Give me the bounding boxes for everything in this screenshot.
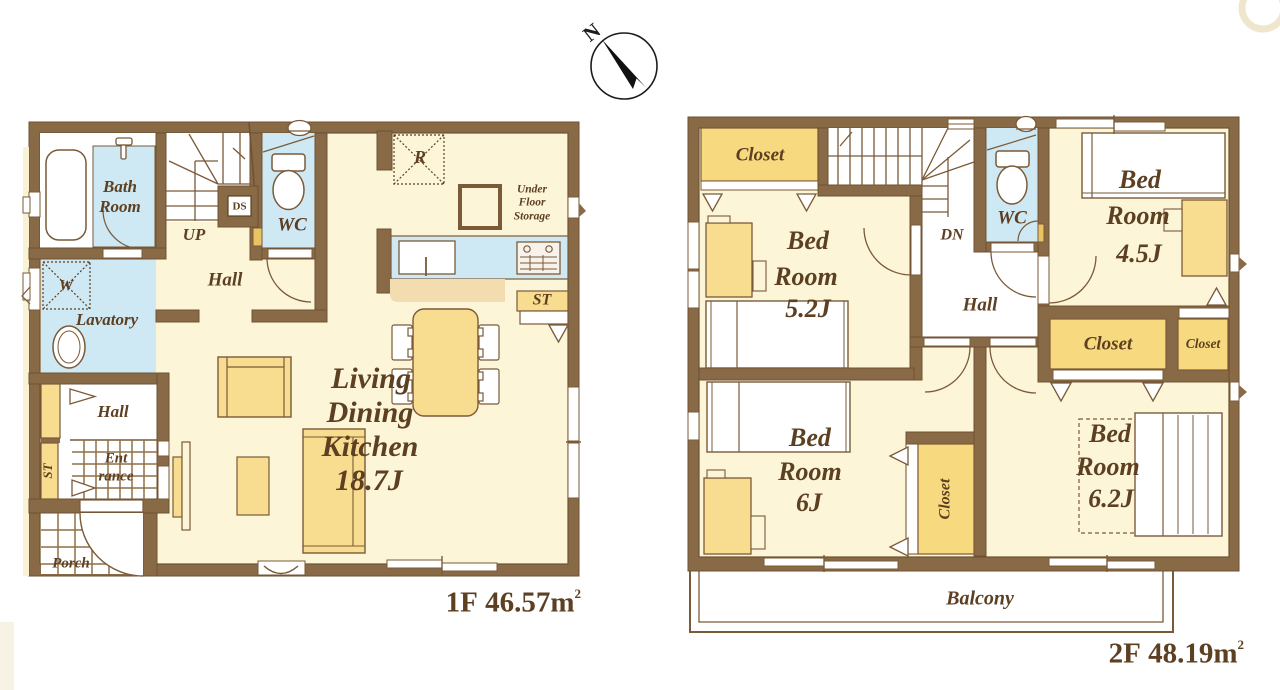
svg-text:Hall: Hall	[96, 402, 128, 421]
svg-text:WC: WC	[277, 214, 307, 235]
svg-text:18.7J: 18.7J	[335, 464, 404, 497]
svg-text:Room: Room	[1075, 452, 1140, 481]
svg-text:R: R	[413, 147, 426, 167]
svg-text:WC: WC	[997, 207, 1027, 228]
svg-text:Floor: Floor	[518, 197, 546, 209]
svg-text:5.2J: 5.2J	[785, 294, 832, 323]
svg-text:4.5J: 4.5J	[1115, 239, 1163, 268]
svg-text:Bed: Bed	[1118, 165, 1162, 194]
svg-text:ST: ST	[40, 462, 55, 478]
svg-text:2F 48.19m2: 2F 48.19m2	[1109, 637, 1244, 670]
svg-text:Bed: Bed	[788, 423, 832, 452]
svg-text:Balcony: Balcony	[945, 588, 1014, 610]
svg-text:DN: DN	[939, 227, 965, 244]
svg-text:Bed: Bed	[786, 226, 830, 255]
svg-text:Ent: Ent	[104, 450, 128, 466]
svg-text:Under: Under	[517, 184, 548, 196]
svg-text:Living: Living	[330, 362, 411, 395]
svg-text:6.2J: 6.2J	[1088, 484, 1135, 513]
svg-text:W: W	[59, 278, 75, 295]
svg-text:6J: 6J	[796, 488, 823, 517]
svg-text:Closet: Closet	[937, 478, 954, 519]
svg-text:rance: rance	[99, 468, 134, 484]
svg-text:Closet: Closet	[736, 144, 785, 165]
svg-text:Bath: Bath	[102, 177, 137, 196]
svg-text:Room: Room	[1105, 201, 1170, 230]
svg-text:Room: Room	[773, 262, 838, 291]
svg-text:Closet: Closet	[1186, 336, 1222, 351]
svg-text:Dining: Dining	[326, 396, 414, 429]
svg-text:Lavatory: Lavatory	[75, 310, 139, 329]
svg-text:Kitchen: Kitchen	[321, 430, 419, 463]
svg-text:Hall: Hall	[207, 269, 244, 290]
svg-text:Closet: Closet	[1084, 333, 1133, 354]
svg-text:Storage: Storage	[514, 211, 550, 223]
svg-text:Room: Room	[98, 197, 141, 216]
svg-text:Bed: Bed	[1088, 419, 1132, 448]
svg-text:Room: Room	[777, 457, 842, 486]
svg-text:UP: UP	[183, 225, 206, 244]
svg-text:DS: DS	[232, 201, 246, 213]
svg-text:1F 46.57m2: 1F 46.57m2	[446, 586, 581, 619]
svg-text:ST: ST	[533, 292, 553, 309]
svg-text:Porch: Porch	[52, 555, 90, 571]
svg-text:Hall: Hall	[962, 294, 999, 315]
